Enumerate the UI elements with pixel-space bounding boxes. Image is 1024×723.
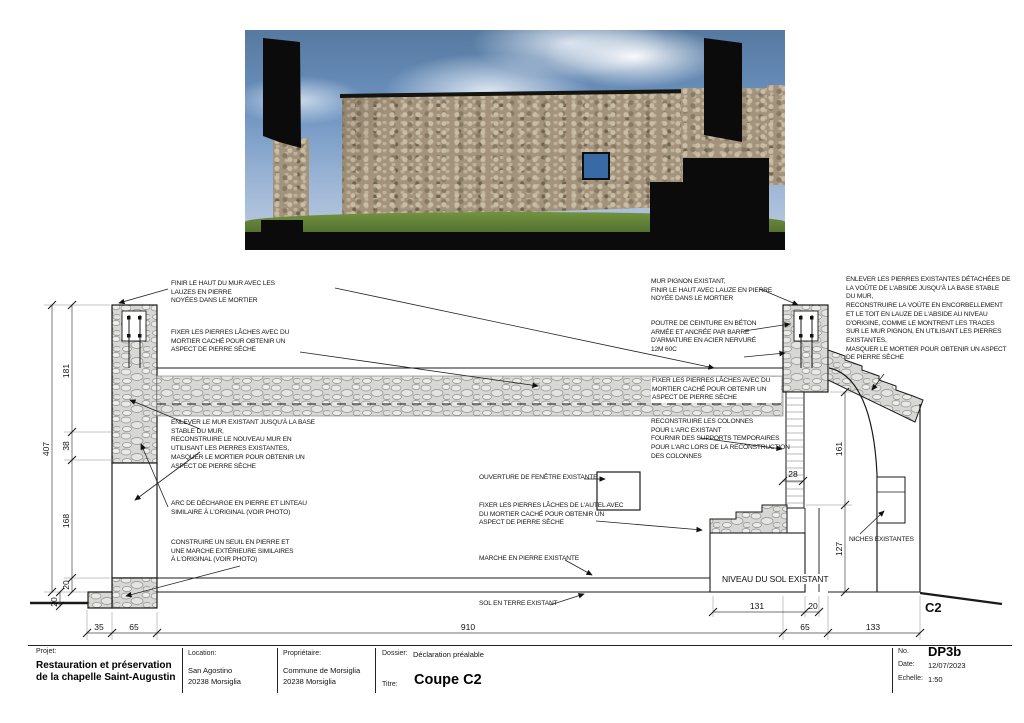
annotation-poutre-ceinture: POUTRE DE CEINTURE EN BÉTON ARMÉE ET ANC… (651, 320, 811, 355)
echelle-value: 1:50 (928, 674, 943, 685)
titleblock-divider-2 (277, 648, 278, 693)
section-c2-label: C2 (925, 600, 942, 615)
location-label: Location: (188, 650, 216, 657)
annotation-finir-haut-mur: FINIR LE HAUT DU MUR AVEC LES LAUZES EN … (171, 280, 341, 306)
proprietaire-value: Commune de Morsiglia 20238 Morsiglia (283, 665, 360, 688)
titleblock-top-border (28, 645, 1012, 646)
annotation-fixer-autel: FIXER LES PIERRES LÂCHES DE L'AUTEL AVEC… (479, 502, 649, 528)
annotation-enlever-pierres-voute: ENLEVER LES PIERRES EXISTANTES DÉTACHÉES… (846, 276, 1018, 363)
annotation-ouverture-fenetre: OUVERTURE DE FENÊTRE EXISTANTE (479, 474, 639, 483)
dim-20-ext: 20 (49, 597, 59, 607)
dim-35: 35 (94, 622, 104, 632)
dim-127: 127 (834, 542, 844, 556)
annotation-sol-terre: SOL EN TERRE EXISTANT (479, 600, 609, 609)
drawing-sheet: { "palette": { "sky_blue": "#6c92c0", "s… (0, 0, 1024, 723)
titre-label: Titre: (382, 681, 398, 688)
dim-20-floor: 20 (61, 580, 71, 590)
date-value: 12/07/2023 (928, 660, 966, 671)
location-value: San Agostino 20238 Morsiglia (188, 665, 241, 688)
annotation-construire-seuil: CONSTRUIRE UN SEUIL EN PIERRE ET UNE MAR… (171, 539, 341, 565)
titleblock-divider-4 (892, 648, 893, 693)
dim-65-left: 65 (129, 622, 139, 632)
dim-20-right: 20 (808, 601, 818, 611)
annotation-fixer-pierres-gauche: FIXER LES PIERRES LÂCHES AVEC DU MORTIER… (171, 329, 341, 355)
annotation-niveau-sol: NIVEAU DU SOL EXISTANT (721, 574, 833, 584)
dim-65-right: 65 (800, 622, 810, 632)
no-value: DP3b (928, 644, 961, 659)
dim-38: 38 (61, 441, 71, 451)
dim-910: 910 (461, 622, 475, 632)
annotation-reconstruire-colonnes: RECONSTRUIRE LES COLONNES POUR L'ARC EXI… (651, 418, 831, 462)
dim-168: 168 (61, 514, 71, 528)
echelle-label: Echelle: (898, 675, 923, 682)
date-label: Date: (898, 661, 915, 668)
annotation-fixer-pierres-droite: FIXER LES PIERRES LÂCHES AVEC DU MORTIER… (651, 377, 781, 403)
dim-181: 181 (61, 364, 71, 378)
annotation-enlever-mur: ENLEVER LE MUR EXISTANT JUSQU'À LA BASE … (171, 419, 361, 471)
dim-28: 28 (788, 469, 798, 479)
dossier-label: Dossier: (382, 650, 408, 657)
annotation-marche-existante: MARCHE EN PIERRE EXISTANTE (479, 555, 629, 564)
annotation-mur-pignon: MUR PIGNON EXISTANT, FINIR LE HAUT AVEC … (651, 278, 821, 304)
titleblock-divider-3 (375, 648, 376, 693)
dim-407: 407 (41, 442, 51, 456)
projet-label: Projet: (36, 648, 56, 655)
dim-133: 133 (866, 622, 880, 632)
titre-value: Coupe C2 (414, 672, 482, 688)
dossier-value: Déclaration préalable (413, 649, 484, 660)
titleblock-divider-1 (182, 648, 183, 693)
dim-131: 131 (750, 601, 764, 611)
annotation-niches: NICHES EXISTANTES (849, 536, 959, 545)
proprietaire-label: Propriétaire: (283, 650, 321, 657)
annotation-arc-decharge: ARC DE DÉCHARGE EN PIERRE ET LINTEAU SIM… (171, 500, 351, 517)
dim-161: 161 (834, 442, 844, 456)
no-label: No. (898, 648, 909, 655)
projet-value: Restauration et préservation de la chape… (36, 660, 175, 684)
